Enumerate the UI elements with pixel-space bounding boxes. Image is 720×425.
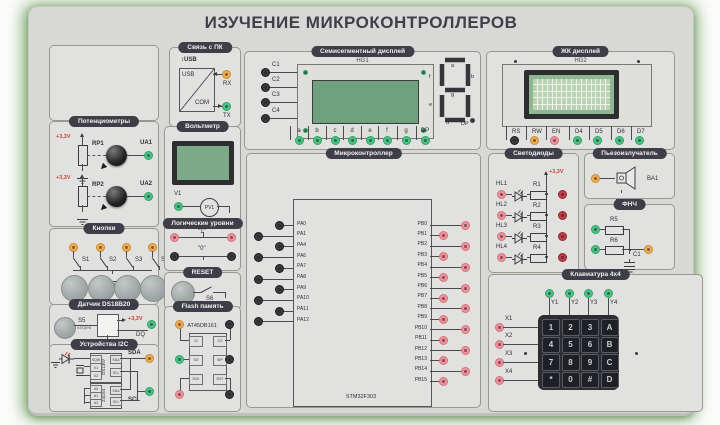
- pa-jack[interactable]: [275, 221, 284, 230]
- hl-jack[interactable]: [497, 232, 506, 241]
- wire: [120, 371, 137, 372]
- section-title: Светодиоды: [504, 148, 563, 159]
- flash-jack[interactable]: [175, 390, 184, 399]
- wire: [622, 249, 644, 250]
- filter-in2-jack[interactable]: [591, 245, 600, 254]
- pa-jack[interactable]: [254, 317, 263, 326]
- r6-label: R6: [610, 238, 618, 244]
- mcu-pin-label: PA9: [297, 286, 306, 291]
- lcd-cell: [601, 85, 605, 90]
- hl-label: HL2: [496, 202, 507, 208]
- mcu-pin-label: PB8: [405, 305, 427, 310]
- s5-label: S5: [78, 318, 85, 324]
- pa-jack[interactable]: [254, 253, 263, 262]
- push-button-s4[interactable]: [140, 275, 167, 302]
- tick: [546, 126, 547, 140]
- led-indicator: [558, 253, 567, 262]
- x-label: X4: [505, 369, 512, 375]
- lcd-cell: [538, 79, 542, 84]
- pv1-meter-symbol: PV1: [200, 198, 219, 217]
- pb-jack[interactable]: [439, 356, 448, 365]
- section-title: Семисегментный дисплей: [311, 46, 414, 57]
- hl-label: HL4: [496, 244, 507, 250]
- tx-jack[interactable]: [222, 102, 231, 111]
- lcd-cell: [587, 105, 591, 110]
- lcd-cell: [577, 98, 581, 103]
- lcd-cell: [596, 105, 600, 110]
- lcd-cell: [562, 85, 566, 90]
- lcd-cell: [562, 98, 566, 103]
- flash-chip-name: AT45DB161: [187, 324, 217, 330]
- pa-jack[interactable]: [254, 275, 263, 284]
- lcd-cell: [606, 79, 610, 84]
- keypad-key-D[interactable]: D: [601, 372, 619, 389]
- segment-jack[interactable]: [402, 136, 411, 145]
- mcu-pin-label: PB15: [405, 378, 427, 383]
- lcd-cell: [592, 98, 596, 103]
- r5-label: R5: [610, 217, 618, 223]
- flash-jack[interactable]: [225, 320, 234, 329]
- switch-label: S2: [109, 257, 116, 263]
- hl-jack[interactable]: [497, 190, 506, 199]
- digit-seg-c: c: [466, 101, 469, 107]
- wire: [180, 378, 189, 379]
- lcd-pin-jack[interactable]: [615, 136, 624, 145]
- wire: [269, 87, 297, 88]
- logic-high-jack[interactable]: [170, 233, 179, 242]
- lcd-cell: [548, 79, 552, 84]
- mcu-pin-label: PA12: [297, 318, 309, 323]
- ua1-jack[interactable]: [144, 151, 153, 160]
- section-title: Логические уровни: [162, 218, 242, 229]
- ua2-jack[interactable]: [144, 192, 153, 201]
- c-label: C4: [272, 108, 280, 114]
- lcd-cell: [553, 79, 557, 84]
- flash-jack[interactable]: [225, 390, 234, 399]
- resistor: [530, 212, 547, 221]
- filter-out-jack[interactable]: [644, 245, 653, 254]
- pb-jack[interactable]: [439, 315, 448, 324]
- module-led: [303, 70, 308, 75]
- segment-label: f: [386, 128, 388, 134]
- push-button-s1[interactable]: [61, 275, 88, 302]
- i2c-pin: SCL: [110, 397, 122, 406]
- logic-high-label: "1": [198, 229, 206, 235]
- segment-label: c: [334, 128, 337, 134]
- segment-label: a: [297, 128, 300, 134]
- lcd-cell: [572, 85, 576, 90]
- lcd-cell: [548, 85, 552, 90]
- hl-jack[interactable]: [497, 253, 506, 262]
- lcd-pin-jack[interactable]: [573, 136, 582, 145]
- segment-jack[interactable]: [348, 136, 357, 145]
- wiper-wire: [87, 155, 106, 156]
- wire: [133, 266, 134, 270]
- flash-pin: CS: [213, 336, 227, 347]
- wire: [549, 298, 550, 315]
- buttons-box: Кнопки S1S2S3S4: [49, 228, 159, 305]
- wire: [82, 136, 83, 145]
- rx-jack[interactable]: [222, 70, 231, 79]
- wire: [203, 232, 204, 237]
- scl-jack[interactable]: [145, 387, 154, 396]
- lcd-cell: [548, 98, 552, 103]
- potentiometer-knob-rp1[interactable]: [106, 145, 127, 166]
- logic-low-label: "0": [198, 246, 206, 252]
- keypad-key-C[interactable]: C: [601, 354, 619, 371]
- tx-label: TX: [223, 113, 231, 119]
- c1-label: C1: [633, 252, 641, 258]
- keypad-key-#[interactable]: #: [581, 372, 599, 389]
- led-indicator: [558, 232, 567, 241]
- mcu-pin-label: PB13: [405, 357, 427, 362]
- lcd-pin-jack[interactable]: [635, 136, 644, 145]
- wire: [82, 205, 83, 212]
- lcd-cell: [592, 85, 596, 90]
- junction: [545, 193, 548, 196]
- ds18b20-symbol: [97, 314, 119, 337]
- wire: [430, 350, 465, 351]
- lcd-cell: [587, 79, 591, 84]
- wire: [600, 178, 615, 179]
- wire: [117, 330, 148, 331]
- pb-jack[interactable]: [461, 367, 470, 376]
- section-title: ЖК дисплей: [552, 46, 609, 57]
- push-button-s3[interactable]: [114, 275, 141, 302]
- i2c-pin: X2: [90, 371, 102, 380]
- potentiometer-knob-rp2[interactable]: [106, 186, 127, 207]
- mcu-pin-label: PB2: [405, 242, 427, 247]
- section-title: Вольтметр: [176, 121, 229, 132]
- wire: [430, 371, 465, 372]
- lcd-cell: [557, 105, 561, 110]
- section-title: Пьезоизлучатель: [592, 148, 666, 159]
- lcd-cell: [577, 85, 581, 90]
- lcd-cell: [538, 92, 542, 97]
- i2c-pin: A2: [90, 399, 102, 407]
- pb-jack[interactable]: [461, 221, 470, 230]
- wire: [269, 118, 297, 119]
- v1-jack[interactable]: [174, 202, 183, 211]
- keypad-key-3[interactable]: 3: [581, 319, 599, 336]
- mcu-pin-label: PB0: [405, 222, 427, 227]
- leds-box: Светодиоды +3,3V HL1R1HL2R2HL3R3HL4R4: [488, 153, 579, 273]
- c-jack[interactable]: [261, 98, 270, 107]
- resistor: [605, 246, 624, 255]
- hl-label: HL3: [496, 223, 507, 229]
- lcd-cell: [606, 105, 610, 110]
- lcd-cell: [582, 105, 586, 110]
- tick: [308, 126, 309, 140]
- wire: [608, 298, 609, 315]
- tick: [397, 126, 398, 140]
- wire: [217, 206, 229, 207]
- pb-jack[interactable]: [439, 273, 448, 282]
- usb-port-label: ↕USB: [181, 57, 197, 63]
- filter-box: ФНЧ R5 R6 C1: [584, 204, 675, 270]
- lcd-cell: [601, 79, 605, 84]
- segment-jack[interactable]: [366, 136, 375, 145]
- keypad-key-A[interactable]: A: [601, 319, 619, 336]
- tick: [506, 126, 507, 140]
- resistor: [530, 191, 547, 200]
- tick: [631, 126, 632, 140]
- i2c-box: Устройства I2C SDA SCL DS1307SQWX1X2SDAS…: [49, 344, 159, 412]
- lcd-pin-jack[interactable]: [550, 136, 559, 145]
- y-jack[interactable]: [545, 289, 554, 298]
- lcd-cell: [533, 105, 537, 110]
- sensor-heat-button[interactable]: [54, 317, 76, 339]
- segment-jack[interactable]: [421, 136, 430, 145]
- screw: [524, 352, 527, 355]
- pa-jack[interactable]: [254, 232, 263, 241]
- push-button-s2[interactable]: [88, 275, 115, 302]
- keypad-box: Клавиатура 4x4 Y1Y2Y3Y4X1X2X3X4123A456B7…: [488, 274, 703, 412]
- wire: [82, 177, 83, 186]
- section-title: ФНЧ: [613, 199, 646, 210]
- tick: [589, 126, 590, 140]
- wire: [430, 225, 465, 226]
- logic-low-jack[interactable]: [170, 252, 179, 261]
- lcd-cell: [577, 105, 581, 110]
- pb-jack[interactable]: [461, 242, 470, 251]
- segment-jack[interactable]: [383, 136, 392, 145]
- tick: [611, 126, 612, 140]
- segment-jack[interactable]: [295, 136, 304, 145]
- lcd-cell: [557, 85, 561, 90]
- lcd-cell: [596, 79, 600, 84]
- keypad-key-8[interactable]: 8: [562, 354, 580, 371]
- c-label: C3: [272, 92, 280, 98]
- wire: [84, 388, 85, 404]
- mcu-pin-label: PB6: [405, 284, 427, 289]
- wire: [137, 391, 145, 392]
- lcd-cell: [553, 85, 557, 90]
- wire: [503, 362, 538, 363]
- lcd-cell: [553, 92, 557, 97]
- lcd-cell: [543, 105, 547, 110]
- section-title: Кнопки: [83, 223, 124, 234]
- keypad-key-4[interactable]: 4: [542, 337, 560, 354]
- blank-box: [49, 45, 159, 121]
- c-jack[interactable]: [261, 114, 270, 123]
- pa-jack[interactable]: [275, 307, 284, 316]
- lcd-pin-jack[interactable]: [510, 136, 519, 145]
- lcd-pin-jack[interactable]: [593, 136, 602, 145]
- wire: [213, 292, 225, 293]
- digit-seg-g: g: [451, 93, 454, 99]
- lcd-cell: [582, 98, 586, 103]
- wire: [137, 371, 138, 400]
- buzzer-jack[interactable]: [591, 174, 600, 183]
- pb-jack[interactable]: [439, 294, 448, 303]
- wire: [269, 102, 297, 103]
- keypad-key-B[interactable]: B: [601, 337, 619, 354]
- pb-jack[interactable]: [461, 346, 470, 355]
- i2c-pin: SCL: [110, 368, 122, 377]
- sda-jack[interactable]: [145, 354, 154, 363]
- wire: [258, 279, 293, 280]
- lcd-box: ЖК дисплей HG2 RSRWEND4D5D6D7: [486, 51, 675, 150]
- wire: [127, 155, 144, 156]
- flash-jack[interactable]: [225, 355, 234, 364]
- ua-label: UA1: [140, 140, 152, 146]
- s5-sub-label: нагрев: [77, 326, 91, 331]
- c-label: C1: [272, 62, 280, 68]
- wire: [588, 298, 589, 315]
- section-title: Flash память: [172, 301, 232, 312]
- lcd-cell: [572, 98, 576, 103]
- wire: [629, 229, 630, 250]
- lcd-cell: [557, 98, 561, 103]
- pb-jack[interactable]: [439, 252, 448, 261]
- wire: [430, 288, 465, 289]
- segment-label: e: [368, 128, 371, 134]
- segment-jack[interactable]: [313, 136, 322, 145]
- tick: [290, 126, 291, 140]
- pa-jack[interactable]: [275, 264, 284, 273]
- lcd-cell: [567, 92, 571, 97]
- wire: [120, 358, 145, 359]
- keypad-key-7[interactable]: 7: [542, 354, 560, 371]
- vcc-label: +3,3V: [56, 176, 71, 182]
- wiper-wire: [87, 196, 106, 197]
- mcu-pin-label: PA0: [297, 222, 306, 227]
- section-title: Датчик DS18B20: [69, 299, 139, 310]
- digit-seg-e: e: [429, 103, 432, 109]
- wire: [107, 266, 108, 270]
- led-icon: [59, 352, 75, 370]
- knob-pointer-icon: [99, 163, 107, 171]
- logic-high-jack[interactable]: [227, 233, 236, 242]
- screw: [635, 352, 638, 355]
- lcd-cell: [533, 98, 537, 103]
- wire: [258, 321, 293, 322]
- arrow-icon: [213, 72, 217, 76]
- lcd-cell: [572, 79, 576, 84]
- y-jack[interactable]: [584, 289, 593, 298]
- lcd-cell: [606, 98, 610, 103]
- flash-pin: SCK: [189, 374, 203, 385]
- wire: [503, 380, 538, 381]
- lcd-cell: [562, 105, 566, 110]
- lcd-pin-jack[interactable]: [530, 136, 539, 145]
- com-label: COM: [195, 100, 209, 106]
- resistor: [530, 254, 547, 263]
- lcd-cell: [543, 85, 547, 90]
- y-jack[interactable]: [604, 289, 613, 298]
- training-board: ИЗУЧЕНИЕ МИКРОКОНТРОЛЛЕРОВ Связь с ПК ↕U…: [0, 0, 720, 425]
- r-label: R2: [533, 203, 541, 209]
- segment-label: g: [404, 128, 407, 134]
- flash-jack[interactable]: [175, 320, 184, 329]
- logic-low-jack[interactable]: [227, 252, 236, 261]
- lcd-cell: [587, 85, 591, 90]
- lcd-cell: [543, 92, 547, 97]
- keypad-key-6[interactable]: 6: [581, 337, 599, 354]
- rx-label: RX: [223, 81, 231, 87]
- pa-jack[interactable]: [254, 296, 263, 305]
- y-label: Y2: [571, 300, 578, 306]
- pb-jack[interactable]: [461, 284, 470, 293]
- mcu-pin-label: PB5: [405, 274, 427, 279]
- junction: [545, 235, 548, 238]
- wire: [130, 358, 131, 389]
- lcd-cell: [557, 92, 561, 97]
- wire: [179, 237, 227, 238]
- r-label: R3: [533, 224, 541, 230]
- keypad-key-0[interactable]: 0: [562, 372, 580, 389]
- lcd-pin-label: D6: [617, 129, 625, 135]
- pa-jack[interactable]: [275, 285, 284, 294]
- c-jack[interactable]: [261, 83, 270, 92]
- lcd-cell: [567, 79, 571, 84]
- flash-jack[interactable]: [175, 355, 184, 364]
- pa-jack[interactable]: [275, 242, 284, 251]
- mcu-pin-label: PB9: [405, 315, 427, 320]
- wire: [80, 266, 81, 270]
- c-jack[interactable]: [261, 68, 270, 77]
- vcc-label: +3,3V: [128, 317, 143, 323]
- mcu-pin-label: PA1: [297, 232, 306, 237]
- digit-seg-f: f: [429, 75, 431, 81]
- hl-jack[interactable]: [497, 211, 506, 220]
- keypad-key-1[interactable]: 1: [542, 319, 560, 336]
- led-icon: [512, 252, 527, 270]
- pb-jack[interactable]: [461, 304, 470, 313]
- wire: [120, 400, 138, 401]
- pb-jack[interactable]: [461, 325, 470, 334]
- wire: [225, 340, 230, 341]
- tick: [569, 126, 570, 140]
- pb-jack[interactable]: [461, 263, 470, 272]
- knob-pointer-icon: [99, 204, 107, 212]
- lcd-cell: [582, 79, 586, 84]
- r-label: R4: [533, 245, 541, 251]
- segment-jack[interactable]: [331, 136, 340, 145]
- tick: [361, 126, 362, 140]
- lcd-pin-label: D4: [575, 129, 583, 135]
- mcu-pin-label: PA8: [297, 275, 306, 280]
- lcd-cell: [533, 79, 537, 84]
- pb-jack[interactable]: [439, 231, 448, 240]
- keypad-key-2[interactable]: 2: [562, 319, 580, 336]
- buzzer-box: Пьезоизлучатель BA1: [584, 153, 675, 199]
- wire: [180, 340, 189, 341]
- digit-seg-dp: DP: [461, 122, 469, 128]
- keypad-key-*[interactable]: *: [542, 372, 560, 389]
- lcd-cell: [567, 105, 571, 110]
- wire: [430, 246, 465, 247]
- flash-pin: RST: [213, 374, 227, 385]
- filter-in1-jack[interactable]: [591, 225, 600, 234]
- pb-jack[interactable]: [439, 336, 448, 345]
- mcu-pin-label: PB4: [405, 263, 427, 268]
- y-jack[interactable]: [565, 289, 574, 298]
- y-label: Y4: [610, 300, 617, 306]
- pb-jack[interactable]: [439, 377, 448, 386]
- dq-jack[interactable]: [147, 320, 156, 329]
- section-title: RESET: [183, 267, 223, 278]
- mcu-pin-label: PA4: [297, 243, 306, 248]
- lcd-cell: [543, 98, 547, 103]
- wire: [622, 229, 629, 230]
- lcd-cell: [572, 105, 576, 110]
- mcu-pin-label: PB11: [405, 336, 427, 341]
- keypad-key-9[interactable]: 9: [581, 354, 599, 371]
- keypad-key-5[interactable]: 5: [562, 337, 580, 354]
- lcd-pin-label: D7: [637, 129, 645, 135]
